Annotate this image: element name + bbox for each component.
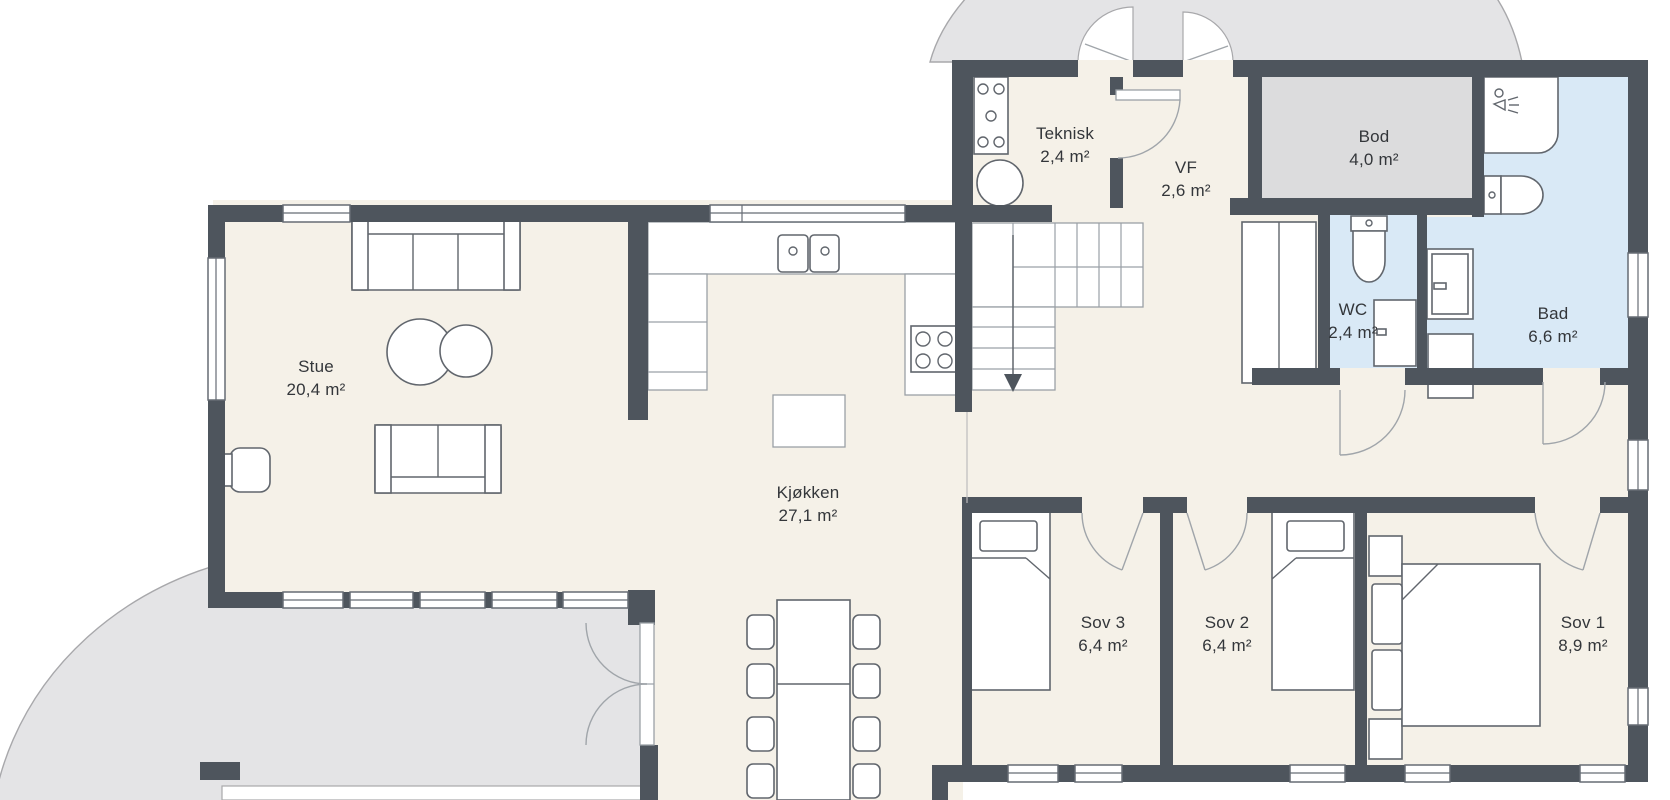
room-label-kjokken: Kjøkken 27,1 m² xyxy=(777,481,840,527)
room-name: WC xyxy=(1328,298,1377,321)
floor-plan: Stue 20,4 m² Kjøkken 27,1 m² Teknisk 2,4… xyxy=(0,0,1670,800)
room-label-vf: VF 2,6 m² xyxy=(1161,156,1210,202)
shower xyxy=(1484,77,1558,153)
wall xyxy=(1472,60,1484,217)
stove xyxy=(911,326,957,372)
room-label-wc: WC 2,4 m² xyxy=(1328,298,1377,344)
room-name: Sov 2 xyxy=(1202,611,1251,634)
room-name: Sov 1 xyxy=(1558,611,1607,634)
room-area: 6,4 m² xyxy=(1078,634,1127,657)
single-bed xyxy=(968,510,1050,690)
wall xyxy=(932,765,948,800)
room-area: 8,9 m² xyxy=(1558,634,1607,657)
toilet-icon xyxy=(1484,176,1543,214)
room-name: Bod xyxy=(1349,125,1398,148)
single-bed xyxy=(1272,510,1354,690)
room-label-stue: Stue 20,4 m² xyxy=(286,355,345,401)
wall xyxy=(1417,210,1427,385)
room-name: VF xyxy=(1161,156,1210,179)
room-label-sov3: Sov 3 6,4 m² xyxy=(1078,611,1127,657)
armchair xyxy=(224,448,270,492)
room-area: 6,6 m² xyxy=(1528,325,1577,348)
wall xyxy=(1600,497,1628,513)
room-area: 2,6 m² xyxy=(1161,179,1210,202)
kitchen-sink xyxy=(778,235,839,272)
wall xyxy=(628,590,655,625)
water-heater xyxy=(977,160,1023,206)
wc-cabinet xyxy=(1374,300,1416,366)
room-name: Kjøkken xyxy=(777,481,840,504)
wall xyxy=(955,205,972,412)
kitchen-island xyxy=(773,395,845,447)
floor-plan-drawing xyxy=(0,0,1670,800)
room-area: 2,4 m² xyxy=(1328,321,1377,344)
door-opening xyxy=(1183,60,1233,77)
wall xyxy=(628,205,648,420)
terrace-post xyxy=(200,762,240,780)
room-label-bod: Bod 4,0 m² xyxy=(1349,125,1398,171)
room-area: 2,4 m² xyxy=(1036,145,1094,168)
room-area: 4,0 m² xyxy=(1349,148,1398,171)
wall xyxy=(952,60,1648,77)
wall xyxy=(1160,497,1173,782)
sofa-3seat xyxy=(352,218,520,290)
room-area: 6,4 m² xyxy=(1202,634,1251,657)
room-name: Teknisk xyxy=(1036,122,1094,145)
wall xyxy=(962,497,1082,513)
toilet-icon xyxy=(1351,216,1387,282)
room-name: Sov 3 xyxy=(1078,611,1127,634)
wall xyxy=(1248,60,1262,215)
sofa-2seat xyxy=(375,425,501,493)
laundry-machine xyxy=(974,77,1008,154)
room-name: Bad xyxy=(1528,302,1577,325)
room-area: 27,1 m² xyxy=(777,504,840,527)
terrace-area xyxy=(320,608,655,800)
wall xyxy=(1355,497,1367,782)
room-area: 20,4 m² xyxy=(286,378,345,401)
wall xyxy=(1247,497,1535,513)
wall xyxy=(962,497,972,782)
room-label-bad: Bad 6,6 m² xyxy=(1528,302,1577,348)
room-label-sov2: Sov 2 6,4 m² xyxy=(1202,611,1251,657)
wall xyxy=(1230,198,1482,215)
room-label-sov1: Sov 1 8,9 m² xyxy=(1558,611,1607,657)
terrace-step xyxy=(222,786,655,800)
wall xyxy=(952,60,973,222)
door-opening xyxy=(1078,60,1133,77)
room-label-teknisk: Teknisk 2,4 m² xyxy=(1036,122,1094,168)
wall xyxy=(1628,60,1648,782)
wall xyxy=(1110,158,1123,208)
round-table xyxy=(440,325,492,377)
wall xyxy=(640,745,658,800)
wardrobe xyxy=(1242,222,1316,383)
dining-table xyxy=(777,600,850,800)
room-name: Stue xyxy=(286,355,345,378)
